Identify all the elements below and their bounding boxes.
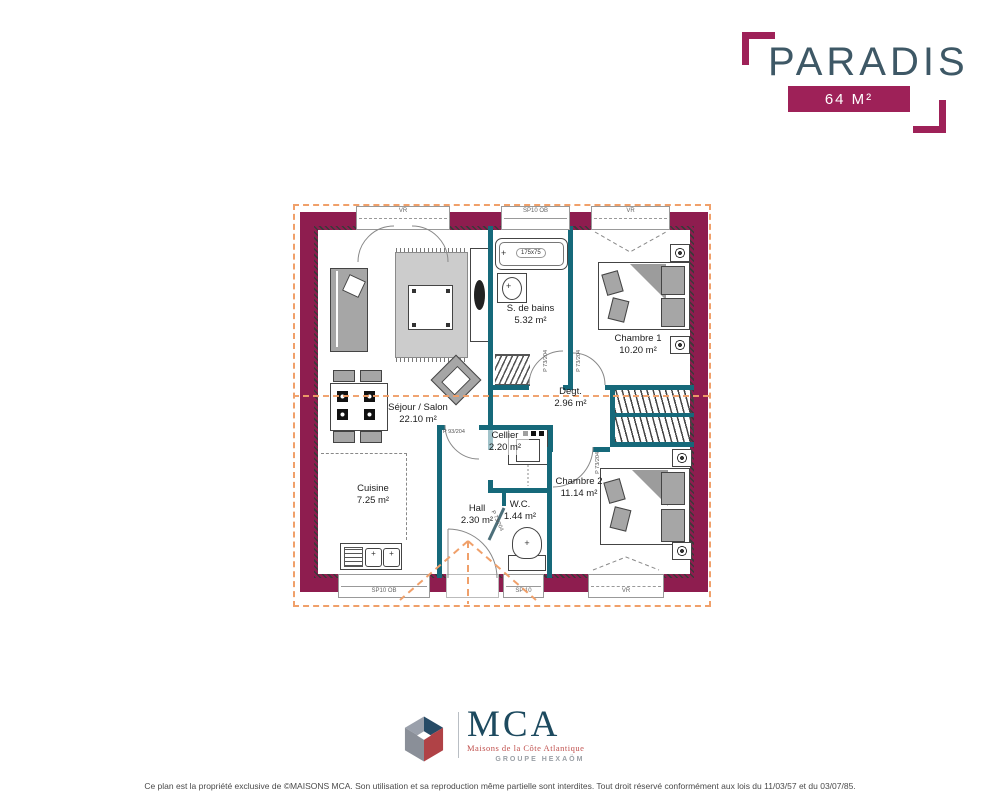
mca-group: GROUPE HEXAÖM: [467, 756, 584, 763]
room-label-chambre2: Chambre 211.14 m²: [551, 476, 607, 501]
room-name: Chambre 2: [551, 476, 607, 488]
room-area: 11.14 m²: [551, 488, 607, 500]
room-label-wc: W.C.1.44 m²: [494, 499, 546, 524]
room-area: 22.10 m²: [385, 414, 451, 426]
mca-logo-divider: [458, 712, 459, 758]
room-name: S. de bains: [498, 303, 563, 315]
plan-title: PARADIS: [768, 40, 969, 85]
porch-gable-line: [468, 541, 536, 600]
copyright-disclaimer: Ce plan est la propriété exclusive de ©M…: [0, 781, 1000, 791]
title-block: PARADIS 64 M²: [740, 28, 950, 133]
mca-logo-block: MCA Maisons de la Côte Atlantique GROUPE…: [398, 706, 608, 778]
mca-logo-text: MCA Maisons de la Côte Atlantique GROUPE…: [467, 706, 584, 763]
room-name: Séjour / Salon: [385, 402, 451, 414]
area-badge: 64 M²: [788, 86, 910, 112]
room-label-cuisine: Cuisine7.25 m²: [343, 483, 403, 508]
room-area: 2.20 m²: [481, 442, 529, 454]
floor-plan: VR SP10 OB VR SP10 OB SP 10 VR + 175x75 …: [293, 202, 713, 612]
tilt-window-dash: [595, 232, 666, 252]
mca-cube-icon: [398, 710, 450, 768]
corner-bracket-bottom-right-icon: [913, 100, 946, 133]
plan-linework: [293, 202, 713, 612]
room-area: 2.96 m²: [543, 398, 598, 410]
tilt-window-dash: [593, 557, 659, 570]
porch-gable-line: [400, 541, 468, 600]
room-area: 10.20 m²: [607, 345, 669, 357]
room-area: 5.32 m²: [498, 315, 563, 327]
room-area: 7.25 m²: [343, 495, 403, 507]
room-label-cellier: Cellier2.20 m²: [481, 430, 529, 455]
door-label: P 73/204: [576, 350, 582, 372]
room-label-degt: Degt.2.96 m²: [543, 386, 598, 411]
room-label-bain: S. de bains5.32 m²: [498, 303, 563, 328]
room-label-sejour: Séjour / Salon22.10 m²: [385, 402, 451, 427]
room-name: Degt.: [543, 386, 598, 398]
room-name: Chambre 1: [607, 333, 669, 345]
mca-acronym: MCA: [467, 706, 584, 743]
door-label: P 73/204: [543, 350, 549, 372]
french-door-arc: [358, 226, 394, 262]
room-name: W.C.: [494, 499, 546, 511]
french-door-arc: [412, 226, 448, 262]
room-name: Cuisine: [343, 483, 403, 495]
door-label: P 73/204: [595, 452, 601, 474]
room-label-chambre1: Chambre 110.20 m²: [607, 333, 669, 358]
mca-subtitle: Maisons de la Côte Atlantique: [467, 743, 584, 753]
roof-ridge-line: [293, 395, 709, 397]
room-area: 1.44 m²: [494, 511, 546, 523]
door-label: P 93/204: [443, 429, 465, 435]
room-name: Cellier: [481, 430, 529, 442]
